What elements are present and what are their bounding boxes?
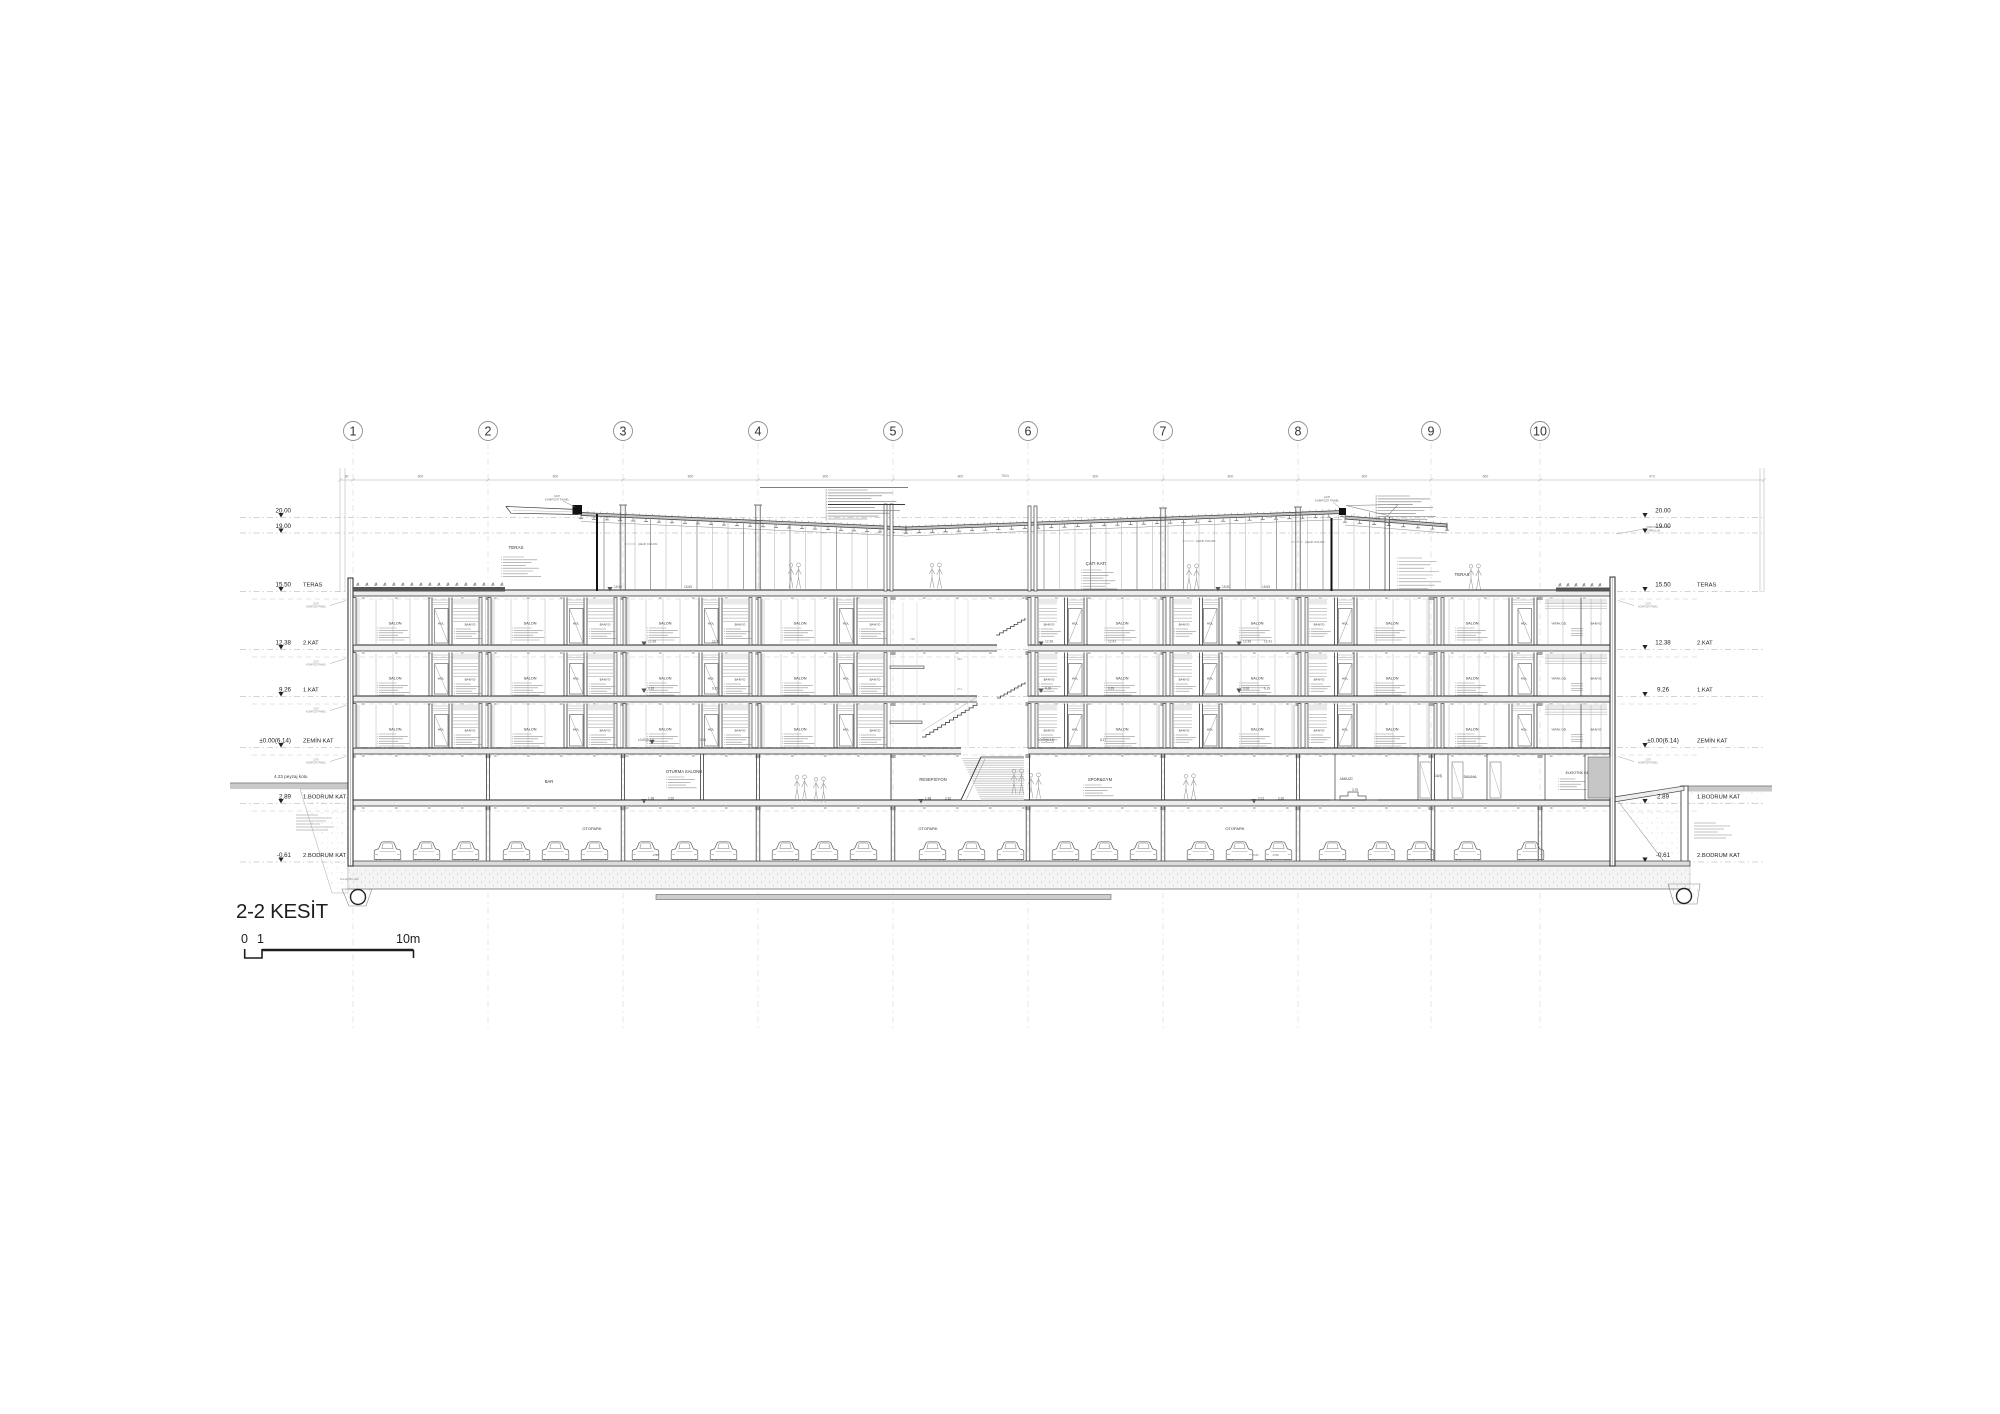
- svg-text:BAR: BAR: [545, 779, 554, 784]
- svg-text:12.38: 12.38: [1655, 640, 1671, 647]
- svg-text:BANYO: BANYO: [600, 729, 611, 733]
- svg-text:BANYO: BANYO: [1044, 623, 1055, 627]
- svg-text:12.41: 12.41: [1264, 640, 1272, 644]
- svg-text:±0.00(6.14): ±0.00(6.14): [1647, 738, 1679, 745]
- svg-text:15.65: 15.65: [1262, 585, 1270, 589]
- svg-text:9: 9: [1428, 424, 1435, 438]
- svg-text:OTOPARK: OTOPARK: [582, 826, 602, 831]
- svg-text:HOL: HOL: [1342, 622, 1349, 626]
- svg-text:BANYO: BANYO: [1591, 622, 1602, 626]
- svg-text:9.26: 9.26: [1657, 687, 1670, 694]
- svg-text:BANYO: BANYO: [1179, 678, 1190, 682]
- svg-text:BANYO: BANYO: [1591, 677, 1602, 681]
- svg-text:HOL: HOL: [1072, 622, 1079, 626]
- svg-text:BANYO: BANYO: [465, 729, 476, 733]
- svg-text:ÇATI: ÇATI: [1645, 603, 1650, 606]
- svg-text:SALON: SALON: [1386, 728, 1399, 732]
- svg-text:ÇATI KATI: ÇATI KATI: [1086, 561, 1107, 566]
- svg-text:SALON: SALON: [389, 622, 402, 626]
- svg-text:BANYO: BANYO: [465, 623, 476, 627]
- svg-text:1: 1: [257, 932, 264, 946]
- svg-text:SALON: SALON: [524, 622, 537, 626]
- svg-text:473: 473: [1649, 475, 1655, 479]
- svg-text:-0.61: -0.61: [1252, 853, 1259, 857]
- svg-text:SALON: SALON: [1386, 622, 1399, 626]
- svg-text:YATAK OD.: YATAK OD.: [1551, 728, 1567, 732]
- svg-text:1.BODRUM KAT: 1.BODRUM KAT: [1697, 795, 1741, 801]
- svg-text:20.00: 20.00: [1655, 508, 1671, 515]
- svg-text:12.38: 12.38: [1243, 640, 1251, 644]
- svg-text:650: 650: [1483, 475, 1489, 479]
- svg-text:SPOR&GYM: SPOR&GYM: [1088, 777, 1113, 782]
- svg-text:15.65: 15.65: [684, 585, 692, 589]
- svg-text:TERAS: TERAS: [508, 545, 523, 550]
- svg-text:HOL: HOL: [1521, 728, 1528, 732]
- svg-text:15.50: 15.50: [614, 585, 622, 589]
- svg-text:BANYO: BANYO: [1314, 729, 1325, 733]
- svg-text:800: 800: [1093, 475, 1099, 479]
- svg-text:4: 4: [755, 424, 762, 438]
- svg-text:HOL: HOL: [1521, 677, 1528, 681]
- svg-text:TERAS: TERAS: [1454, 572, 1469, 577]
- svg-text:SALON: SALON: [1251, 622, 1264, 626]
- svg-text:KOMPOZİT PANEL: KOMPOZİT PANEL: [306, 711, 327, 714]
- svg-text:SALON: SALON: [794, 677, 807, 681]
- svg-text:0: 0: [241, 932, 248, 946]
- svg-text:-0.56: -0.56: [652, 853, 659, 857]
- svg-text:HOL: HOL: [708, 728, 715, 732]
- svg-text:3: 3: [620, 424, 627, 438]
- svg-text:KOMPOZİT PANEL: KOMPOZİT PANEL: [306, 762, 327, 765]
- svg-text:ZEMİN KAT: ZEMİN KAT: [1697, 738, 1728, 745]
- svg-text:HOL: HOL: [1342, 677, 1349, 681]
- svg-text:ÇATI: ÇATI: [313, 661, 318, 664]
- svg-text:OTOPARK: OTOPARK: [1225, 826, 1245, 831]
- svg-text:HOL: HOL: [573, 622, 580, 626]
- svg-text:2.KAT: 2.KAT: [303, 641, 319, 647]
- svg-text:SALON: SALON: [389, 728, 402, 732]
- svg-text:BANYO: BANYO: [870, 678, 881, 682]
- svg-text:800: 800: [688, 475, 694, 479]
- svg-text:BANYO: BANYO: [1591, 728, 1602, 732]
- svg-text:BANYO: BANYO: [735, 729, 746, 733]
- svg-text:800: 800: [1362, 475, 1368, 479]
- svg-text:12.38: 12.38: [1045, 640, 1053, 644]
- svg-text:20.00: 20.00: [276, 508, 292, 515]
- svg-text:YATAK OD.: YATAK OD.: [1551, 677, 1567, 681]
- svg-text:BANYO: BANYO: [600, 623, 611, 627]
- svg-text:15.50: 15.50: [276, 582, 292, 589]
- svg-text:19.00: 19.00: [1655, 523, 1671, 530]
- svg-text:2.BODRUM KAT: 2.BODRUM KAT: [303, 853, 347, 859]
- svg-text:9.26: 9.26: [1243, 687, 1249, 691]
- svg-text:BANYO: BANYO: [1314, 623, 1325, 627]
- svg-text:ÇATI: ÇATI: [313, 759, 318, 762]
- svg-text:HOL: HOL: [843, 728, 850, 732]
- svg-text:9.29: 9.29: [1264, 687, 1270, 691]
- svg-text:ÇATI: ÇATI: [313, 708, 318, 711]
- svg-text:SALON: SALON: [524, 728, 537, 732]
- svg-text:12.38: 12.38: [276, 640, 292, 647]
- svg-text:3.79: 3.79: [1352, 788, 1358, 792]
- svg-text:BANYO: BANYO: [735, 623, 746, 627]
- svg-text:TERAS: TERAS: [1697, 583, 1716, 589]
- svg-text:OTOPARK: OTOPARK: [918, 826, 938, 831]
- svg-text:KOMPOZİT PANEL: KOMPOZİT PANEL: [1638, 606, 1659, 609]
- svg-text:800: 800: [1228, 475, 1234, 479]
- svg-text:ÇELİK KOLON: ÇELİK KOLON: [1305, 539, 1324, 544]
- svg-text:HOL: HOL: [708, 677, 715, 681]
- svg-text:30: 30: [345, 475, 349, 479]
- svg-text:SALON: SALON: [1251, 728, 1264, 732]
- svg-text:-0.61: -0.61: [1656, 852, 1671, 859]
- svg-text:HOL: HOL: [438, 728, 445, 732]
- svg-text:OTURMA SALONU: OTURMA SALONU: [666, 769, 702, 774]
- svg-text:SALON: SALON: [659, 622, 672, 626]
- svg-text:SAUNA: SAUNA: [1463, 775, 1477, 779]
- svg-text:BANYO: BANYO: [870, 729, 881, 733]
- svg-text:HOL: HOL: [438, 622, 445, 626]
- svg-text:2: 2: [485, 424, 492, 438]
- svg-text:ÇATI: ÇATI: [1645, 759, 1650, 762]
- svg-text:312: 312: [957, 657, 962, 661]
- svg-text:800: 800: [958, 475, 964, 479]
- svg-text:1.BODRUM KAT: 1.BODRUM KAT: [303, 795, 347, 801]
- svg-text:SALON: SALON: [1466, 622, 1479, 626]
- svg-text:12.41: 12.41: [712, 640, 720, 644]
- svg-text:4.23 peyzaj kotu: 4.23 peyzaj kotu: [274, 774, 308, 779]
- svg-text:800: 800: [553, 475, 559, 479]
- svg-text:HOL: HOL: [573, 677, 580, 681]
- svg-text:HOL: HOL: [1521, 622, 1528, 626]
- svg-text:YATAK OD.: YATAK OD.: [1551, 622, 1567, 626]
- svg-text:0.15: 0.15: [700, 738, 706, 742]
- svg-text:2-2 KESİT: 2-2 KESİT: [236, 900, 329, 923]
- svg-text:2.BODRUM KAT: 2.BODRUM KAT: [1697, 853, 1741, 859]
- svg-text:2.92: 2.92: [1278, 797, 1284, 801]
- svg-text:KOMPOZİT PANEL: KOMPOZİT PANEL: [306, 664, 327, 667]
- svg-text:9.26: 9.26: [648, 687, 654, 691]
- svg-text:SALON: SALON: [1116, 677, 1129, 681]
- svg-text:KOMPOZİT PANEL: KOMPOZİT PANEL: [306, 606, 327, 609]
- svg-text:15.50: 15.50: [1222, 585, 1230, 589]
- svg-text:800: 800: [823, 475, 829, 479]
- svg-text:SALON: SALON: [1466, 728, 1479, 732]
- svg-text:ZEMİN KAT: ZEMİN KAT: [303, 738, 334, 745]
- svg-text:5: 5: [890, 424, 897, 438]
- svg-text:SALON: SALON: [659, 728, 672, 732]
- svg-text:2.92: 2.92: [668, 797, 674, 801]
- svg-text:DUŞ: DUŞ: [1434, 774, 1442, 778]
- svg-text:BANYO: BANYO: [600, 678, 611, 682]
- svg-text:HOL: HOL: [573, 728, 580, 732]
- svg-text:ÇELİK KOLON: ÇELİK KOLON: [1196, 538, 1215, 543]
- svg-text:7: 7: [1160, 424, 1167, 438]
- svg-text:SALON: SALON: [389, 677, 402, 681]
- svg-text:BANYO: BANYO: [1044, 729, 1055, 733]
- svg-text:2.KAT: 2.KAT: [1697, 641, 1713, 647]
- svg-text:9.26: 9.26: [1045, 687, 1051, 691]
- svg-text:SALON: SALON: [1251, 677, 1264, 681]
- svg-text:7924: 7924: [1001, 474, 1009, 478]
- svg-text:HOL: HOL: [843, 677, 850, 681]
- svg-text:800: 800: [418, 475, 424, 479]
- svg-text:15.50: 15.50: [1655, 582, 1671, 589]
- svg-text:SALON: SALON: [1466, 677, 1479, 681]
- svg-text:-0.56: -0.56: [1272, 853, 1279, 857]
- svg-text:10m: 10m: [396, 932, 420, 946]
- svg-text:HOL: HOL: [1207, 677, 1214, 681]
- svg-text:1.98: 1.98: [925, 797, 931, 801]
- svg-text:KOMPOZİT PANEL: KOMPOZİT PANEL: [1315, 498, 1340, 503]
- svg-text:HOL: HOL: [1207, 728, 1214, 732]
- svg-text:Drenaj 200 çakıl: Drenaj 200 çakıl: [340, 877, 359, 881]
- svg-text:BANYO: BANYO: [1314, 678, 1325, 682]
- svg-text:1.KAT: 1.KAT: [303, 688, 319, 694]
- svg-text:10: 10: [1533, 424, 1547, 438]
- svg-text:BANYO: BANYO: [870, 623, 881, 627]
- svg-text:HOL: HOL: [1072, 677, 1079, 681]
- svg-text:HOL: HOL: [708, 622, 715, 626]
- svg-text:SALON: SALON: [524, 677, 537, 681]
- svg-text:2.01: 2.01: [1258, 797, 1264, 801]
- svg-text:SALON: SALON: [659, 677, 672, 681]
- svg-text:TERAS: TERAS: [303, 583, 322, 589]
- svg-text:BANYO: BANYO: [465, 678, 476, 682]
- svg-text:HOL: HOL: [843, 622, 850, 626]
- svg-text:6: 6: [1025, 424, 1032, 438]
- svg-text:HOL: HOL: [1342, 728, 1349, 732]
- svg-text:ELEKTRİK OD.: ELEKTRİK OD.: [1566, 770, 1591, 775]
- svg-text:9.29: 9.29: [1108, 687, 1114, 691]
- svg-text:SALON: SALON: [794, 622, 807, 626]
- svg-text:1.98: 1.98: [648, 797, 654, 801]
- svg-text:BANYO: BANYO: [1044, 678, 1055, 682]
- svg-text:BANYO: BANYO: [1179, 729, 1190, 733]
- svg-text:2.89: 2.89: [1657, 794, 1670, 801]
- svg-text:ÇATI: ÇATI: [313, 603, 318, 606]
- svg-text:±0.00(6.14): ±0.00(6.14): [1038, 738, 1054, 742]
- svg-text:BANYO: BANYO: [735, 678, 746, 682]
- svg-text:271: 271: [957, 687, 962, 691]
- svg-text:HOL: HOL: [1207, 622, 1214, 626]
- svg-text:1: 1: [350, 424, 357, 438]
- svg-text:HOL: HOL: [438, 677, 445, 681]
- svg-text:SALON: SALON: [794, 728, 807, 732]
- svg-text:746: 746: [910, 637, 915, 641]
- svg-text:±0.00(6.14): ±0.00(6.14): [259, 738, 291, 745]
- svg-text:SALON: SALON: [1386, 677, 1399, 681]
- svg-text:19.00: 19.00: [276, 523, 292, 530]
- svg-text:1.KAT: 1.KAT: [1697, 688, 1713, 694]
- svg-text:BANYO: BANYO: [1179, 623, 1190, 627]
- svg-text:KOMPOZİT PANEL: KOMPOZİT PANEL: [1638, 762, 1659, 765]
- svg-text:KOMPOZİT PANEL: KOMPOZİT PANEL: [545, 497, 570, 502]
- svg-text:RESEPSİYON: RESEPSİYON: [919, 777, 946, 782]
- svg-text:12.38: 12.38: [648, 640, 656, 644]
- svg-text:JAKUZİ: JAKUZİ: [1339, 776, 1352, 781]
- svg-text:12.41: 12.41: [1108, 640, 1116, 644]
- svg-text:8.17: 8.17: [1100, 738, 1106, 742]
- svg-text:SALON: SALON: [1116, 728, 1129, 732]
- svg-text:9.29: 9.29: [712, 687, 718, 691]
- svg-text:2.92: 2.92: [945, 797, 951, 801]
- svg-text:SALON: SALON: [1116, 622, 1129, 626]
- svg-text:HOL: HOL: [1072, 728, 1079, 732]
- svg-text:8: 8: [1295, 424, 1302, 438]
- svg-text:ÇELİK KOLON: ÇELİK KOLON: [638, 541, 657, 546]
